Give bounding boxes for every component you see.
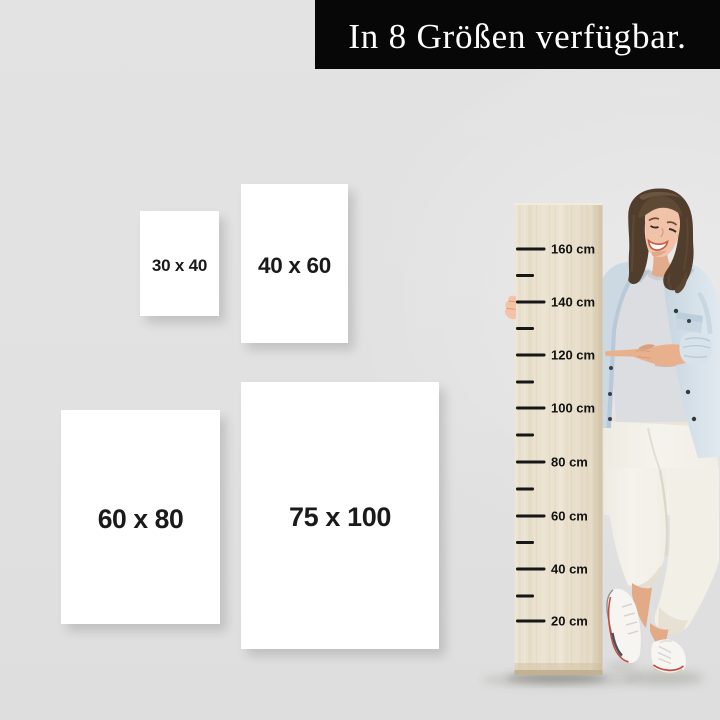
- svg-text:20 cm: 20 cm: [551, 614, 588, 629]
- svg-text:100 cm: 100 cm: [551, 401, 595, 416]
- svg-text:160 cm: 160 cm: [551, 242, 595, 257]
- svg-text:120 cm: 120 cm: [551, 348, 595, 363]
- svg-text:140 cm: 140 cm: [551, 295, 595, 310]
- svg-text:80 cm: 80 cm: [551, 455, 588, 470]
- svg-text:60 cm: 60 cm: [551, 509, 588, 524]
- svg-text:40 cm: 40 cm: [551, 562, 588, 577]
